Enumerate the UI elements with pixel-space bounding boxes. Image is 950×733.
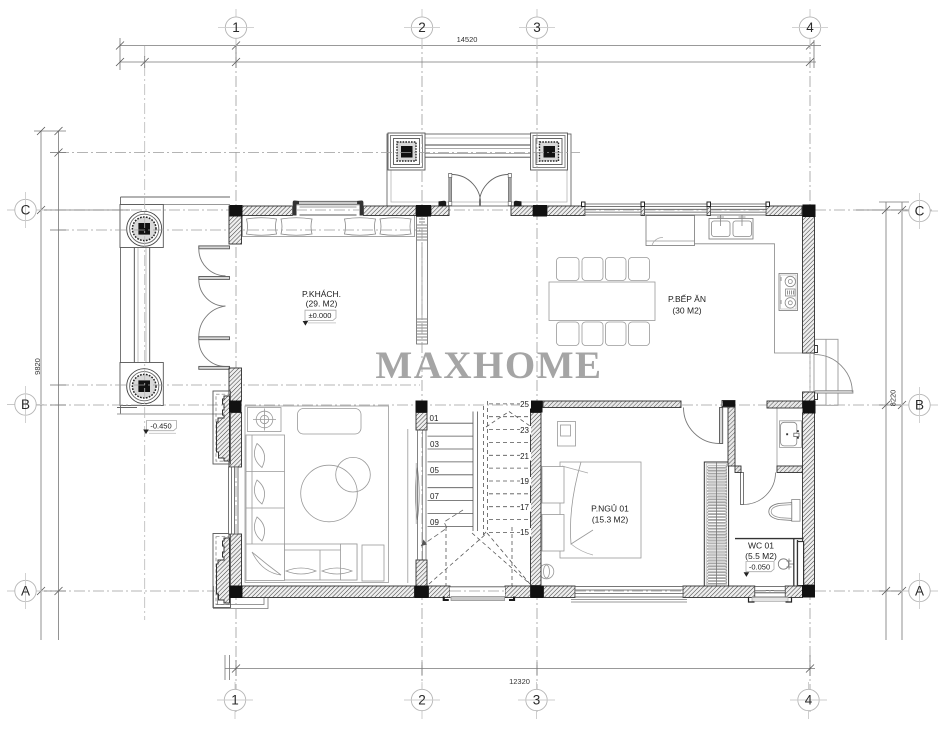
svg-text:9820: 9820 — [33, 358, 42, 375]
svg-text:21: 21 — [520, 452, 529, 461]
svg-text:(29. M2): (29. M2) — [306, 299, 338, 309]
svg-text:19: 19 — [520, 477, 529, 486]
svg-text:4: 4 — [806, 20, 814, 35]
svg-text:2: 2 — [418, 20, 426, 35]
svg-text:C: C — [915, 204, 925, 219]
svg-text:12320: 12320 — [509, 677, 530, 686]
svg-text:C: C — [21, 203, 31, 218]
svg-text:05: 05 — [430, 466, 439, 475]
svg-text:1: 1 — [232, 20, 240, 35]
svg-text:A: A — [915, 584, 924, 599]
svg-text:4: 4 — [805, 693, 813, 708]
svg-text:17: 17 — [520, 503, 529, 512]
svg-text:-0.050: -0.050 — [749, 562, 770, 571]
svg-text:-0.450: -0.450 — [150, 422, 171, 431]
svg-text:B: B — [21, 397, 30, 412]
svg-text:(30 M2): (30 M2) — [672, 306, 701, 316]
svg-text:MAXHOME: MAXHOME — [375, 344, 602, 387]
svg-text:23: 23 — [520, 426, 529, 435]
svg-text:P.BẾP ĂN: P.BẾP ĂN — [668, 294, 706, 304]
svg-text:(15.3 M2): (15.3 M2) — [592, 515, 629, 525]
svg-text:B: B — [915, 398, 924, 413]
svg-text:8220: 8220 — [889, 390, 898, 407]
svg-text:01: 01 — [430, 414, 439, 423]
svg-text:P.NGỦ 01: P.NGỦ 01 — [591, 503, 629, 514]
svg-text:WC 01: WC 01 — [748, 541, 774, 551]
svg-text:07: 07 — [430, 492, 439, 501]
svg-text:2: 2 — [418, 693, 426, 708]
svg-text:3: 3 — [533, 20, 541, 35]
svg-text:3: 3 — [533, 693, 541, 708]
svg-text:P.KHÁCH.: P.KHÁCH. — [302, 289, 341, 299]
svg-text:A: A — [21, 584, 30, 599]
svg-text:14520: 14520 — [457, 35, 478, 44]
svg-text:09: 09 — [430, 518, 439, 527]
svg-text:03: 03 — [430, 440, 439, 449]
svg-text:25: 25 — [520, 400, 529, 409]
svg-text:(5.5 M2): (5.5 M2) — [745, 551, 777, 561]
svg-text:±0.000: ±0.000 — [309, 311, 332, 320]
svg-text:1: 1 — [231, 693, 239, 708]
svg-text:15: 15 — [520, 528, 529, 537]
